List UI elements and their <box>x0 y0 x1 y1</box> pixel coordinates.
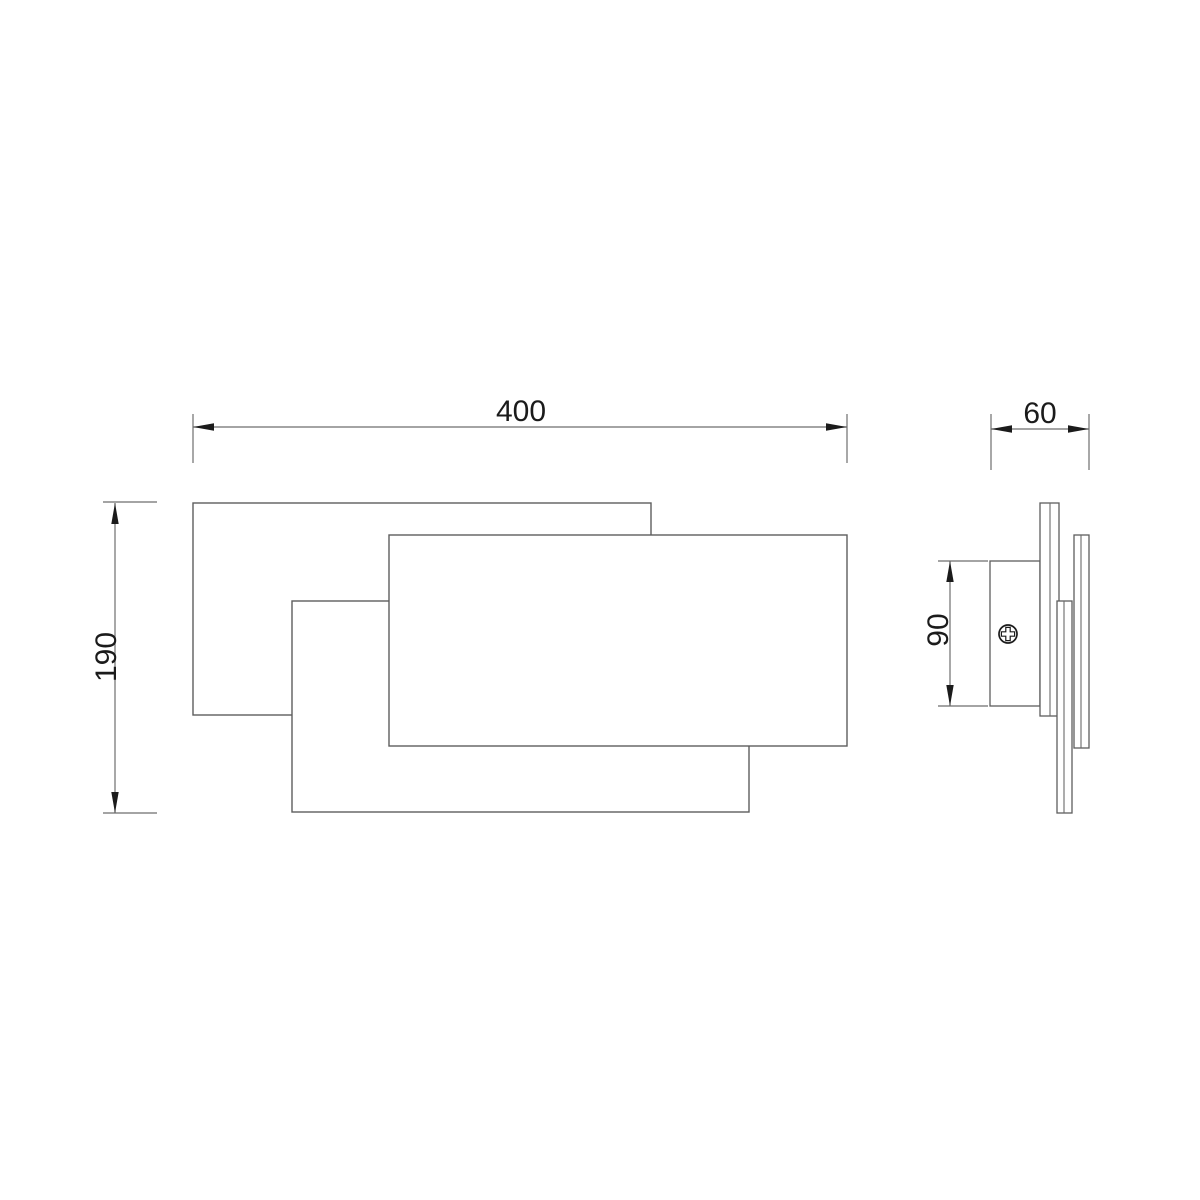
dimension-label-depth: 60 <box>1023 397 1056 430</box>
panel-edge-front <box>1074 535 1089 748</box>
technical-drawing-page: 400 190 <box>0 0 1200 1200</box>
arrowhead-up-icon <box>111 503 118 524</box>
arrowhead-up-icon <box>946 561 953 582</box>
dimension-depth: 60 <box>991 397 1089 470</box>
arrowhead-down-icon <box>946 685 953 706</box>
arrowhead-left-icon <box>193 423 214 430</box>
side-view <box>990 503 1089 813</box>
dimension-bracket-height: 90 <box>922 561 988 706</box>
front-view <box>193 503 847 812</box>
dimension-label-bracket-height: 90 <box>922 613 955 646</box>
dimension-height: 190 <box>90 502 157 813</box>
arrowhead-right-icon <box>826 423 847 430</box>
dimension-label-height: 190 <box>90 632 123 682</box>
panel-edge-middle <box>1057 601 1072 813</box>
arrowhead-down-icon <box>111 792 118 813</box>
panel-edge-back <box>1040 503 1059 716</box>
panel-front-center <box>389 535 847 746</box>
arrowhead-left-icon <box>991 425 1012 432</box>
technical-drawing-canvas: 400 190 <box>0 0 1200 1200</box>
dimension-label-width: 400 <box>496 395 546 428</box>
arrowhead-right-icon <box>1068 425 1089 432</box>
dimension-width: 400 <box>193 395 847 463</box>
phillips-screw-icon <box>999 625 1017 643</box>
